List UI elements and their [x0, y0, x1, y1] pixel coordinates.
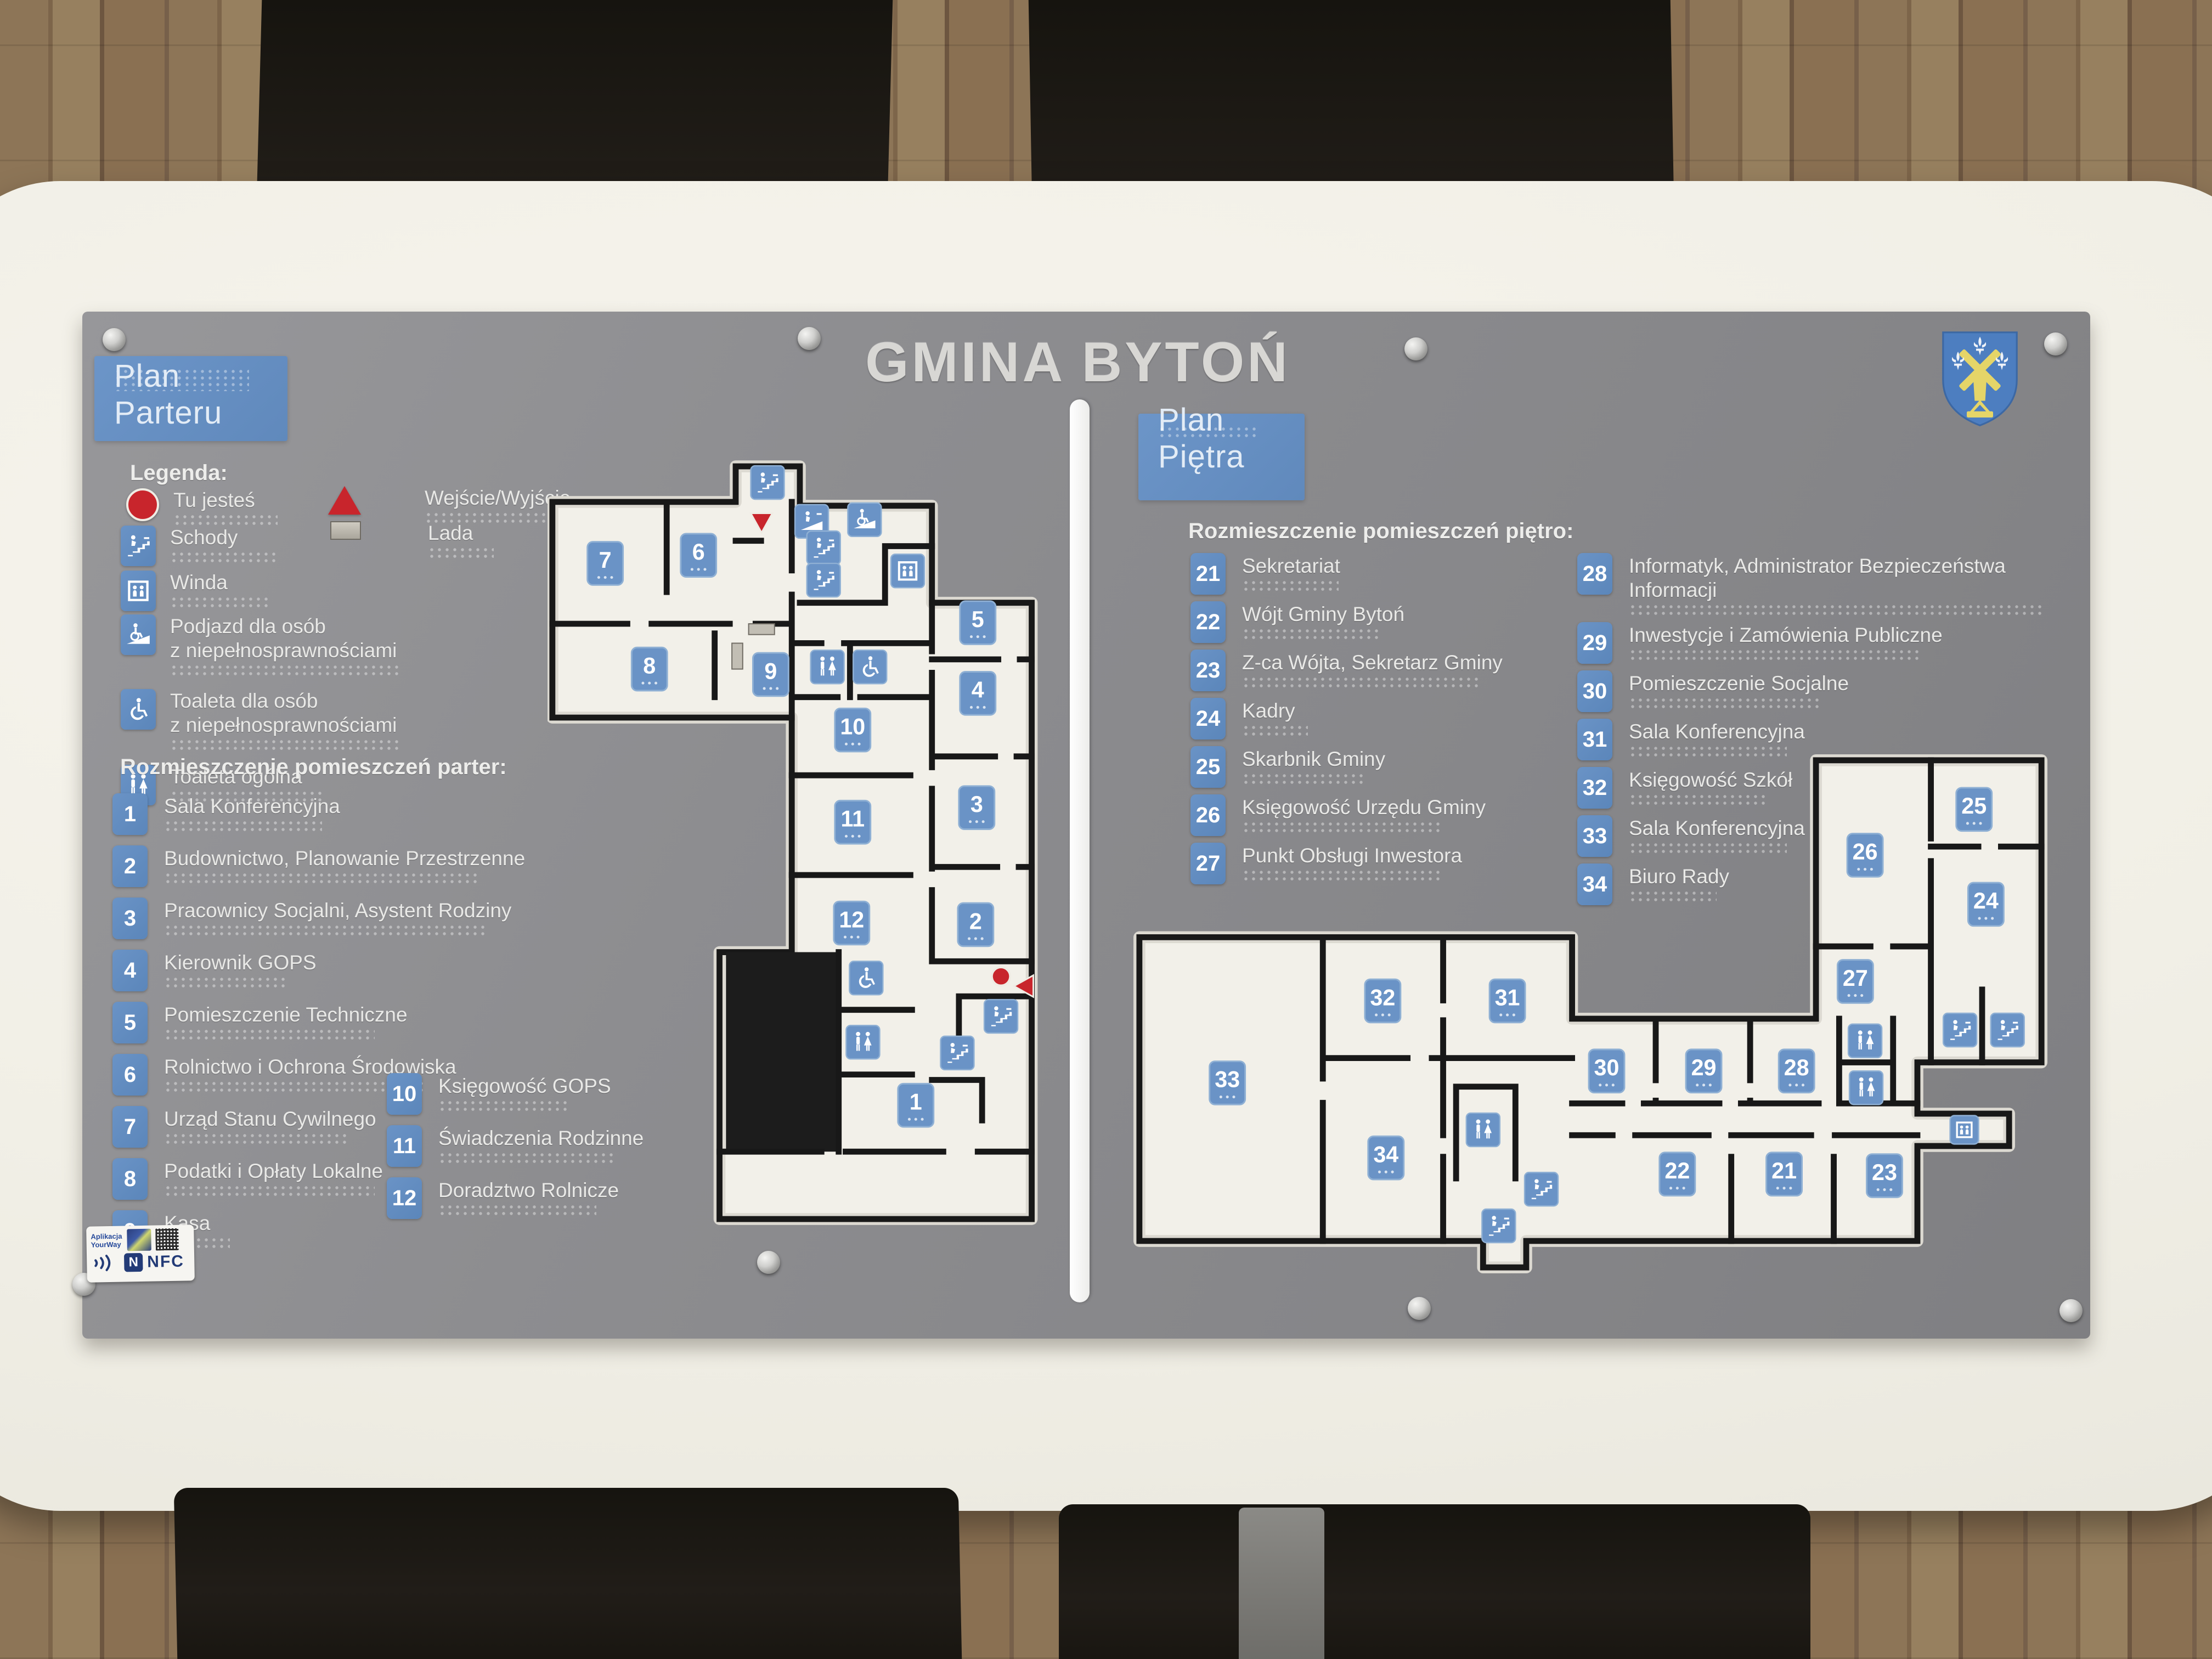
- room-marker-28: 28: [1779, 1049, 1814, 1093]
- counter-marker: [732, 643, 743, 669]
- accessible-toilet-icon: [849, 961, 883, 995]
- room-marker-11: 11: [835, 800, 871, 844]
- room-number-badge: 28: [1577, 553, 1612, 595]
- svg-text:33: 33: [1215, 1067, 1240, 1092]
- stairs-icon: [751, 466, 785, 499]
- room-marker-26: 26: [1847, 834, 1883, 877]
- room-number-badge: 1: [112, 793, 148, 835]
- app-thumbnail: [127, 1229, 151, 1251]
- accessible-toilet-icon: [853, 650, 887, 684]
- ground-rooms-heading: Rozmieszczenie pomieszczeń parter:: [120, 755, 507, 780]
- room-label: Budownictwo, Planowanie Przestrzenne: [164, 847, 525, 870]
- room-number-badge: 29: [1577, 622, 1612, 664]
- room-number-badge: 8: [112, 1158, 148, 1200]
- room-number-badge: 21: [1190, 553, 1226, 595]
- room-marker-29: 29: [1686, 1049, 1722, 1093]
- svg-text:6: 6: [692, 539, 705, 565]
- room-marker-25: 25: [1956, 788, 1992, 831]
- legend-item-counter: Lada: [330, 516, 494, 558]
- room-marker-2: 2: [958, 903, 994, 946]
- ground-floor-plan: 768954321011121: [548, 459, 1049, 1229]
- room-marker-34: 34: [1368, 1136, 1404, 1180]
- room-number-badge: 3: [112, 898, 148, 939]
- room-marker-5: 5: [960, 601, 996, 645]
- room-list-item: 3Pracownicy Socjalni, Asystent Rodziny: [112, 898, 525, 939]
- room-marker-3: 3: [959, 786, 995, 830]
- room-label: Informatyk, Administrator Bezpieczeństwa…: [1629, 555, 2006, 601]
- mounting-screw: [1404, 337, 1427, 360]
- stairs-icon: [1482, 1209, 1515, 1243]
- nfc-logo: N: [124, 1253, 143, 1272]
- mounting-screw: [798, 327, 821, 350]
- room-list-item: 1Sala Konferencyjna: [112, 793, 525, 835]
- qr-code: [155, 1228, 179, 1251]
- svg-text:7: 7: [599, 548, 612, 573]
- room-label: Inwestycje i Zamówienia Publiczne: [1629, 624, 1943, 646]
- room-number-badge: 7: [112, 1106, 148, 1148]
- svg-text:8: 8: [643, 653, 656, 678]
- room-number-badge: 23: [1190, 650, 1226, 691]
- legend-item-ramp: Podjazd dla osób z niepełnosprawnościami: [121, 614, 400, 676]
- svg-text:9: 9: [764, 658, 777, 684]
- plan-pietra-label: Plan Piętra: [1158, 402, 1305, 475]
- nfc-app-line2: YourWay: [91, 1240, 123, 1249]
- svg-text:11: 11: [840, 806, 865, 832]
- plan-parteru-header: Plan Parteru: [94, 356, 287, 441]
- room-marker-30: 30: [1589, 1049, 1624, 1093]
- room-label: Pomieszczenie Socjalne: [1629, 672, 1849, 695]
- room-list-item: 23Z-ca Wójta, Sekretarz Gminy: [1190, 650, 1503, 691]
- room-number-badge: 22: [1190, 601, 1226, 643]
- room-label: Kierownik GOPS: [164, 951, 317, 974]
- stairs-icon: [984, 1000, 1018, 1033]
- nfc-app-line1: Aplikacja: [91, 1232, 122, 1241]
- svg-text:2: 2: [969, 909, 982, 934]
- svg-text:34: 34: [1373, 1142, 1398, 1167]
- counter-icon: [330, 521, 361, 540]
- toilet-icon: [811, 650, 844, 684]
- room-label: Sekretariat: [1242, 555, 1340, 577]
- nfc-label: NFC: [147, 1252, 184, 1272]
- plan-pietra-header: Plan Piętra: [1138, 414, 1305, 500]
- room-list-item: 21Sekretariat: [1190, 553, 1503, 595]
- room-label: Kadry: [1242, 699, 1295, 722]
- room-marker-9: 9: [753, 653, 788, 696]
- stairs-icon: [121, 526, 156, 566]
- room-marker-23: 23: [1867, 1154, 1903, 1198]
- room-marker-31: 31: [1489, 979, 1525, 1023]
- room-list-item: 5Pomieszczenie Techniczne: [112, 1002, 525, 1043]
- room-marker-33: 33: [1210, 1062, 1245, 1105]
- svg-text:26: 26: [1853, 839, 1878, 865]
- mounting-screw: [2059, 1299, 2083, 1322]
- room-list-item: 28Informatyk, Administrator Bezpieczeńst…: [1577, 553, 2090, 616]
- stairs-icon: [940, 1036, 974, 1070]
- room-marker-24: 24: [1968, 883, 2004, 926]
- entrance-triangle-icon: [328, 486, 361, 515]
- legend-item-accessible-toilet: Toaleta dla osób z niepełnosprawnościami: [121, 689, 400, 751]
- room-list-item: 22Wójt Gminy Bytoń: [1190, 601, 1503, 643]
- svg-text:23: 23: [1872, 1160, 1897, 1185]
- room-number-badge: 30: [1577, 670, 1612, 712]
- room-number-badge: 4: [112, 950, 148, 991]
- room-number-badge: 24: [1190, 698, 1226, 740]
- room-marker-10: 10: [835, 708, 871, 752]
- room-label: Urząd Stanu Cywilnego: [164, 1108, 376, 1130]
- sign-title: GMINA BYTOŃ: [865, 330, 1290, 394]
- dark-glass-panel-bottom-left: [174, 1488, 962, 1659]
- toilet-icon: [846, 1025, 879, 1059]
- elevator-icon: [121, 571, 156, 611]
- svg-text:28: 28: [1784, 1055, 1809, 1080]
- svg-text:22: 22: [1664, 1158, 1690, 1183]
- room-marker-22: 22: [1660, 1153, 1695, 1196]
- toilet-icon: [1848, 1024, 1882, 1058]
- coat-of-arms-byton: [1936, 327, 2024, 429]
- svg-text:1: 1: [910, 1090, 922, 1115]
- elevator-icon: [1950, 1116, 1979, 1144]
- room-marker-7: 7: [588, 542, 623, 585]
- room-marker-12: 12: [834, 901, 870, 945]
- stairs-icon: [807, 563, 840, 597]
- room-list-item: 2Budownictwo, Planowanie Przestrzenne: [112, 845, 525, 887]
- svg-text:32: 32: [1370, 985, 1395, 1010]
- panel-divider: [1070, 399, 1090, 1302]
- elevator-icon: [891, 554, 924, 588]
- room-list-item: 24Kadry: [1190, 698, 1503, 740]
- svg-text:27: 27: [1843, 966, 1868, 991]
- room-label: Sala Konferencyjna: [1629, 720, 1805, 743]
- svg-text:21: 21: [1771, 1158, 1797, 1183]
- accessible-ramp-icon: [848, 503, 881, 537]
- stairs-icon: [807, 531, 840, 565]
- first-rooms-heading: Rozmieszczenie pomieszczeń piętro:: [1188, 519, 1573, 544]
- braille-row: [1158, 425, 1258, 438]
- stairs-icon: [1943, 1013, 1977, 1047]
- accessible-toilet-icon: [121, 689, 156, 730]
- svg-text:12: 12: [839, 907, 864, 932]
- room-marker-8: 8: [631, 647, 667, 691]
- room-list-item: 29Inwestycje i Zamówienia Publiczne: [1577, 622, 2090, 664]
- nfc-sticker: Aplikacja YourWay N NFC: [86, 1224, 195, 1282]
- svg-text:25: 25: [1961, 793, 1987, 819]
- room-label: Podatki i Opłaty Lokalne: [164, 1160, 383, 1182]
- toilet-icon: [1849, 1071, 1883, 1104]
- svg-text:4: 4: [972, 678, 984, 703]
- mounting-screw: [2044, 332, 2067, 356]
- room-label: Pracownicy Socjalni, Asystent Rodziny: [164, 899, 511, 922]
- nfc-wave-icon: [91, 1254, 120, 1273]
- legend-heading: Legenda:: [130, 461, 228, 486]
- room-marker-27: 27: [1837, 960, 1873, 1003]
- legend-item-elevator: Winda: [121, 571, 269, 611]
- mounting-screw: [1408, 1297, 1431, 1320]
- room-label: Wójt Gminy Bytoń: [1242, 603, 1404, 625]
- room-marker-1: 1: [898, 1084, 934, 1127]
- room-marker-4: 4: [960, 672, 996, 715]
- room-marker-6: 6: [681, 534, 716, 577]
- room-label: Pomieszczenie Techniczne: [164, 1003, 408, 1026]
- mounting-screw: [757, 1251, 780, 1274]
- solid-black-area: [726, 952, 838, 1152]
- room-number-badge: 6: [112, 1054, 148, 1096]
- svg-text:10: 10: [840, 714, 865, 739]
- room-label: Sala Konferencyjna: [164, 795, 340, 817]
- room-number-badge: 12: [387, 1177, 422, 1219]
- legend-item-you-are-here: Tu jesteś: [126, 488, 278, 526]
- svg-text:24: 24: [1973, 888, 1999, 913]
- first-floor-plan: 3332313430292822212326252427: [1130, 753, 2052, 1274]
- plan-parteru-label: Plan Parteru: [114, 358, 287, 431]
- svg-text:3: 3: [970, 792, 983, 817]
- tactile-building-directory-sign: GMINA BYTOŃ Plan Parteru: [82, 312, 2090, 1339]
- mounting-screw: [103, 328, 126, 351]
- stairs-icon: [1991, 1013, 2024, 1047]
- photo-of-wayfinding-sign: GMINA BYTOŃ Plan Parteru: [0, 0, 2212, 1659]
- legend-item-stairs: Schody: [121, 526, 280, 566]
- room-number-badge: 5: [112, 1002, 148, 1043]
- room-number-badge: 10: [387, 1073, 422, 1115]
- svg-text:5: 5: [972, 607, 984, 632]
- room-list-item: 30Pomieszczenie Socjalne: [1577, 670, 2090, 712]
- room-marker-21: 21: [1767, 1153, 1802, 1196]
- you-are-here-marker: [992, 967, 1010, 985]
- counter-marker: [749, 624, 775, 635]
- toilet-icon: [1466, 1113, 1500, 1147]
- stairs-icon: [1525, 1172, 1558, 1206]
- you-are-here-icon: [126, 488, 159, 521]
- room-list-item: 4Kierownik GOPS: [112, 950, 525, 991]
- wheelchair-ramp-icon: [121, 614, 156, 655]
- room-number-badge: 2: [112, 845, 148, 887]
- person-leg: [1239, 1508, 1324, 1659]
- svg-text:30: 30: [1594, 1055, 1620, 1080]
- dark-glass-panel-bottom-right: [1059, 1504, 1810, 1659]
- room-number-badge: 11: [387, 1125, 422, 1167]
- room-label: Z-ca Wójta, Sekretarz Gminy: [1242, 651, 1503, 674]
- room-marker-32: 32: [1365, 979, 1401, 1023]
- svg-text:29: 29: [1691, 1055, 1717, 1080]
- svg-text:31: 31: [1495, 985, 1520, 1010]
